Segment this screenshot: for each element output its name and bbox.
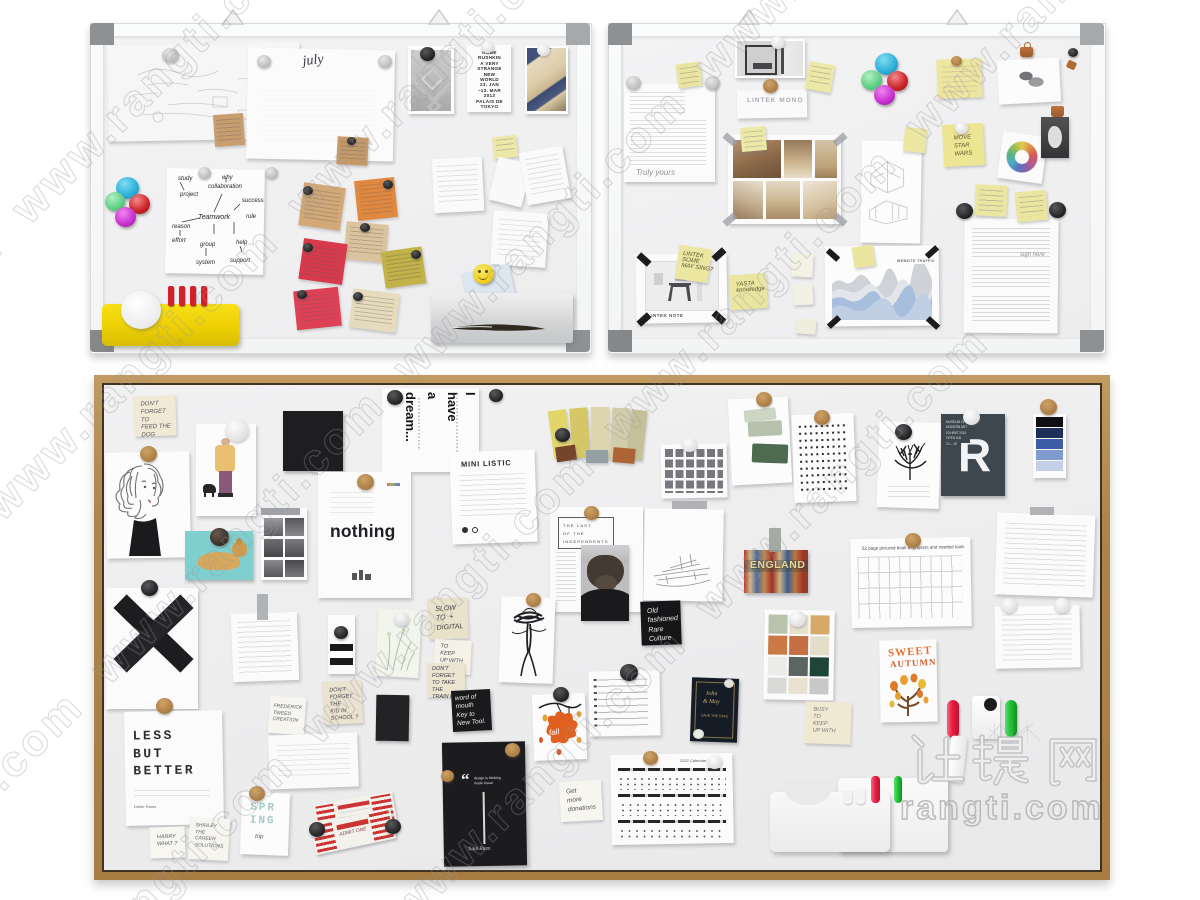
svg-text:fall: fall [548,727,560,737]
